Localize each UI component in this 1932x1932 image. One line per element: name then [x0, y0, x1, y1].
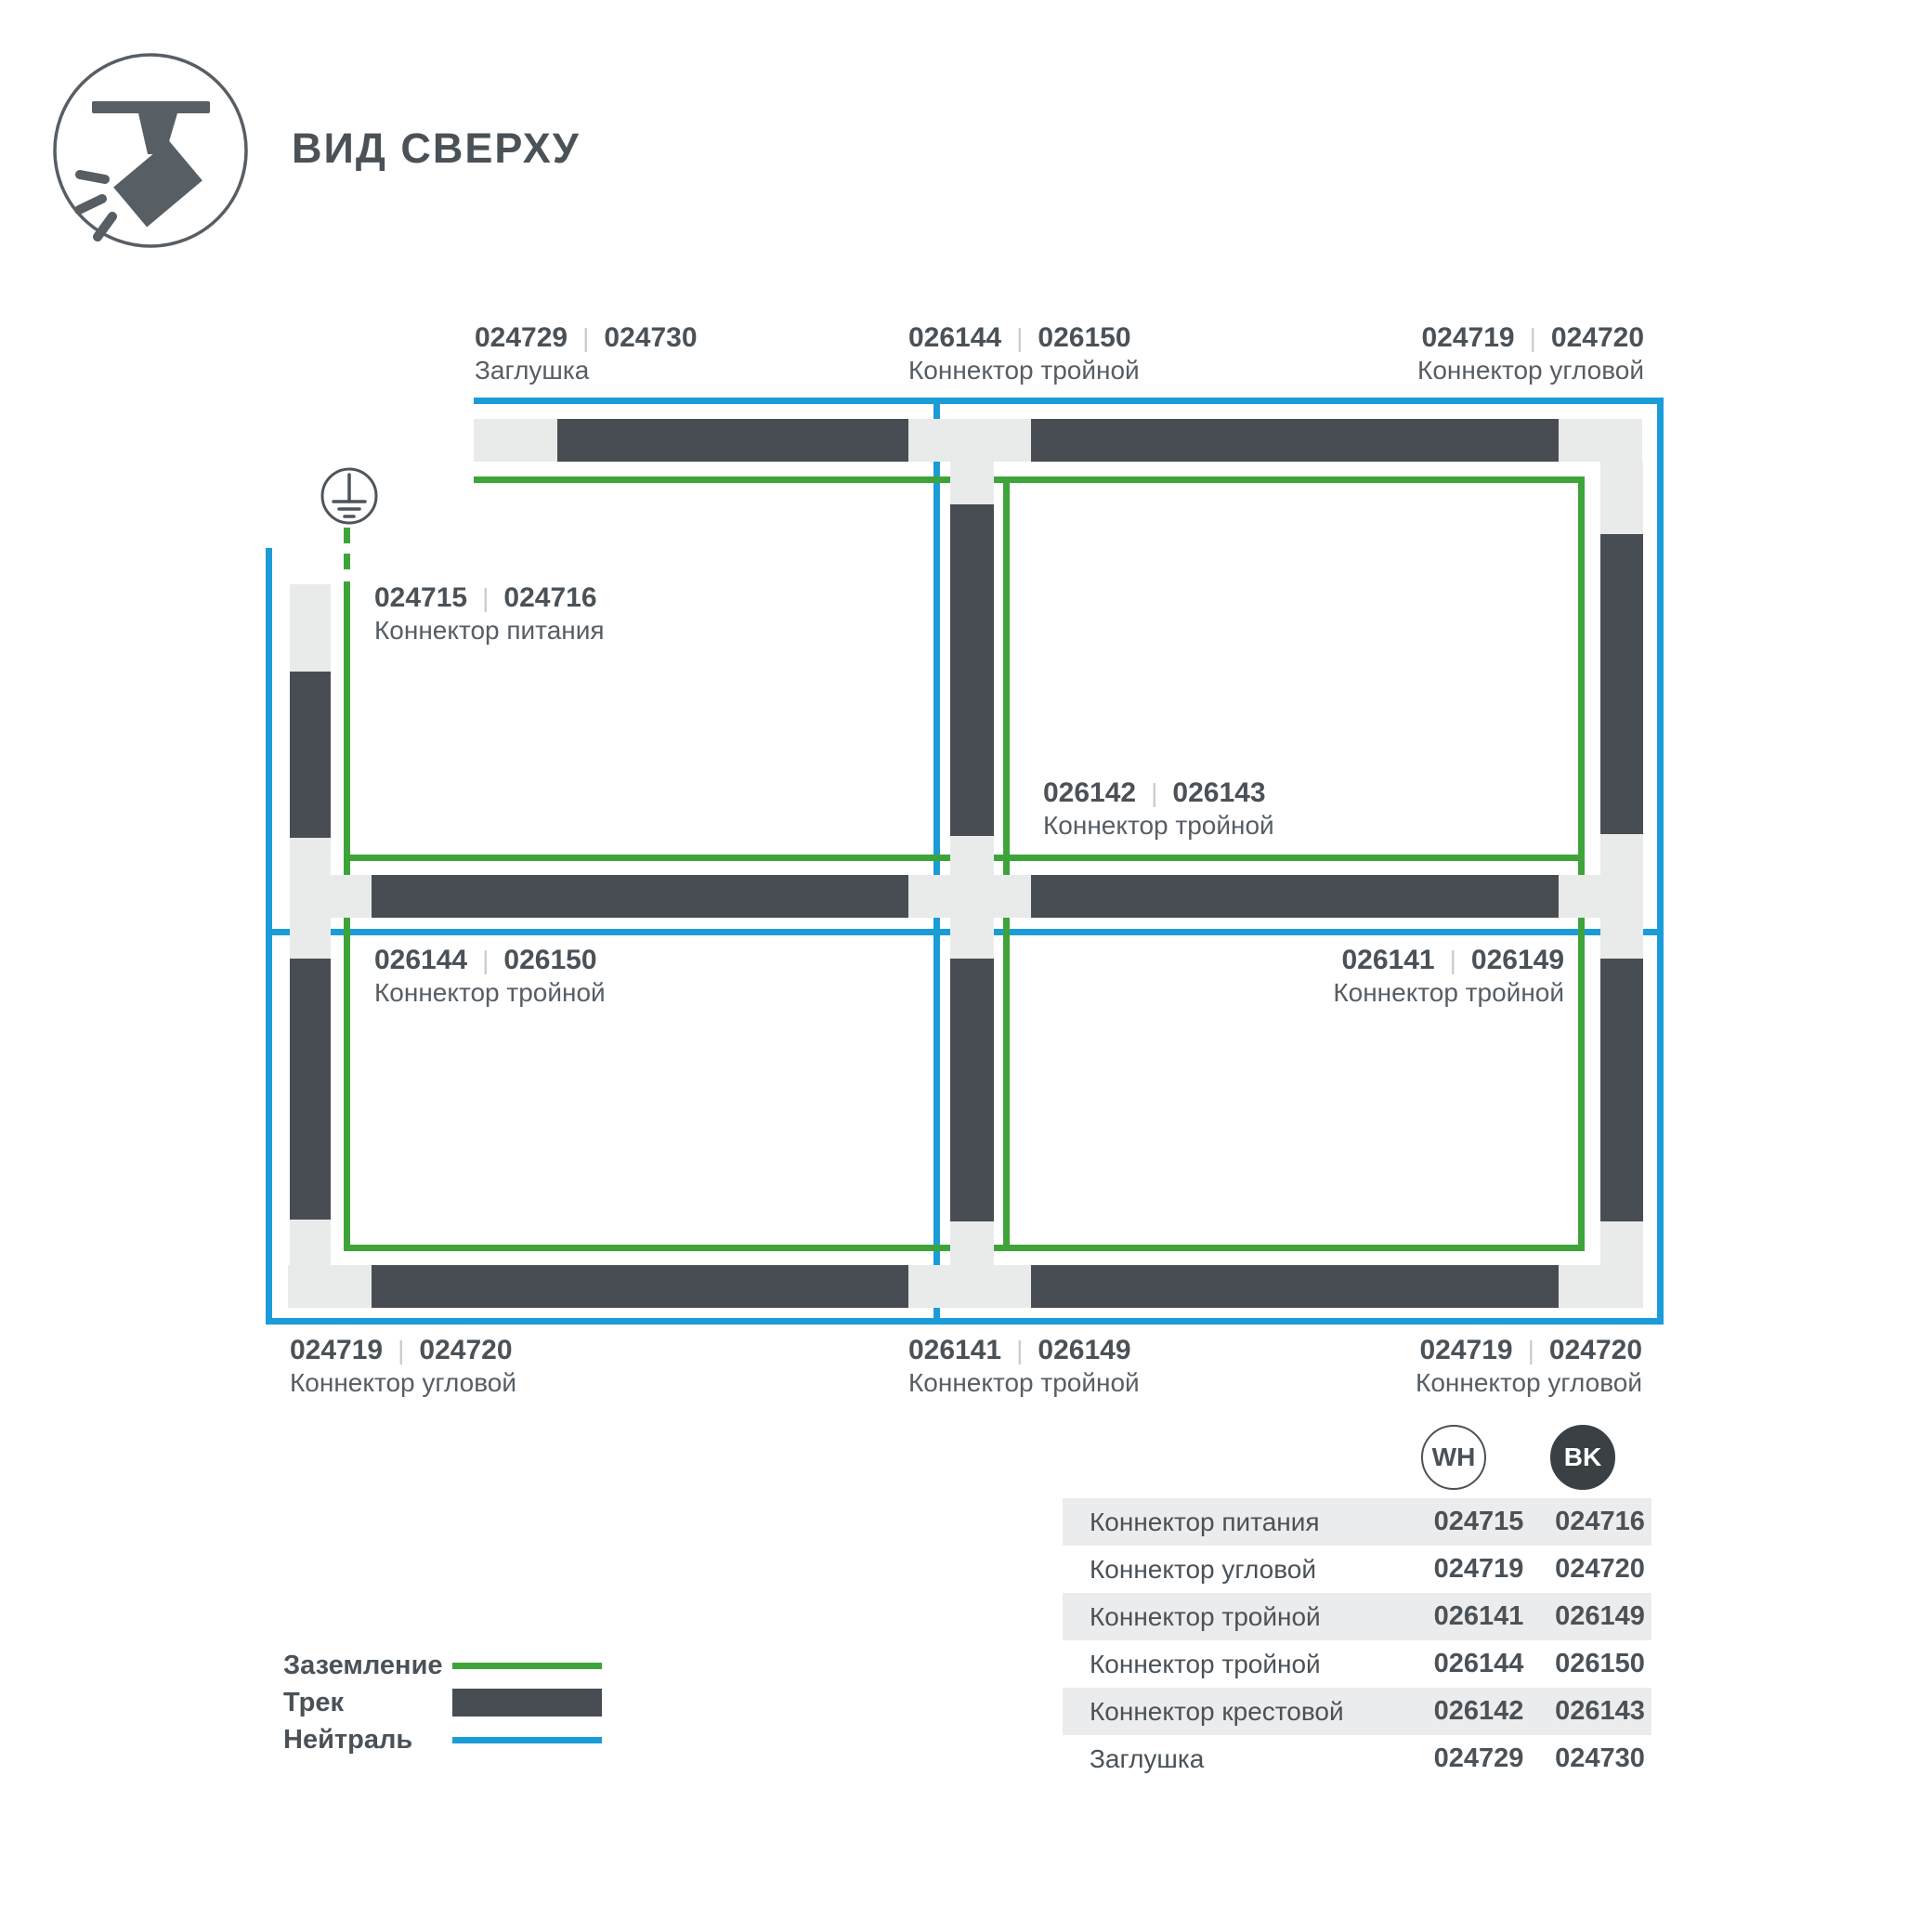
wh-code-cell: 024729 [1409, 1743, 1548, 1774]
wh-code-cell: 026141 [1409, 1601, 1548, 1632]
earth-ground-icon [316, 463, 383, 529]
part-name: Коннектор тройной [1333, 976, 1564, 1009]
part-name-cell: Заглушка [1063, 1744, 1409, 1774]
code-wh: 024719 [1422, 322, 1515, 353]
code-wh: 026141 [908, 1335, 1001, 1365]
bk-code-cell: 024730 [1548, 1743, 1651, 1774]
track-segment [950, 504, 994, 836]
part-label-power-connector: 024715|024716 Коннектор питания [374, 581, 605, 646]
t-connector-top-stub [950, 462, 994, 504]
code-separator: | [1151, 778, 1157, 807]
code-bk: 026150 [1038, 322, 1130, 353]
code-wh: 024715 [374, 582, 467, 613]
track-segment [1031, 875, 1559, 918]
code-bk: 024720 [419, 1335, 512, 1365]
track-segment [290, 959, 331, 1220]
track-segment [950, 959, 994, 1221]
track-segment [290, 672, 331, 838]
code-bk: 024720 [1551, 322, 1644, 353]
part-label-t-connector-midright: 026141|026149 Коннектор тройной [1333, 944, 1564, 1009]
ground-line-top [474, 476, 1585, 483]
code-wh: 024719 [290, 1335, 383, 1365]
legend-label-ground: Заземление [283, 1651, 443, 1680]
table-row: Коннектор тройной 026144 026150 [1063, 1640, 1651, 1688]
table-row: Заглушка 024729 024730 [1063, 1735, 1651, 1782]
top-view-icon [48, 48, 255, 255]
bk-code-cell: 024716 [1548, 1507, 1651, 1537]
corner-connector-topright [1559, 419, 1642, 462]
page-title: ВИД СВЕРХУ [292, 124, 581, 173]
bk-code-cell: 026143 [1548, 1696, 1651, 1727]
code-bk: 026149 [1471, 945, 1564, 975]
t-connector-midright-vert [1600, 834, 1643, 959]
corner-connector-bottomleft-stub [290, 1220, 331, 1308]
wh-code-cell: 024715 [1409, 1507, 1548, 1537]
t-connector-midleft-arm [290, 875, 372, 918]
code-bk: 024716 [503, 582, 596, 613]
part-name: Коннектор угловой [1417, 354, 1644, 386]
track-segment [372, 875, 908, 918]
t-connector-top [908, 419, 1031, 462]
part-name: Коннектор питания [374, 614, 605, 646]
legend-track-bar-swatch [452, 1689, 602, 1717]
code-bk: 026150 [503, 945, 596, 975]
part-name-cell: Коннектор крестовой [1063, 1697, 1409, 1727]
code-wh: 026144 [908, 322, 1001, 353]
corner-connector-topright-stub [1600, 462, 1643, 534]
part-label-t-connector-top: 026144|026150 Коннектор тройной [908, 321, 1140, 386]
code-wh: 026142 [1043, 777, 1136, 808]
legend-neutral-line-swatch [452, 1737, 602, 1743]
wh-code-cell: 026142 [1409, 1696, 1548, 1727]
table-row: Коннектор тройной 026141 026149 [1063, 1593, 1651, 1640]
bk-code-cell: 026150 [1548, 1649, 1651, 1679]
legend-label-neutral: Нейтраль [283, 1725, 412, 1755]
part-name: Коннектор тройной [908, 1366, 1140, 1399]
table-row: Коннектор угловой 024719 024720 [1063, 1546, 1651, 1593]
neutral-line-left [266, 548, 272, 1325]
part-label-corner-bottomright: 024719|024720 Коннектор угловой [1416, 1334, 1642, 1399]
t-connector-bottom-stub [950, 1221, 994, 1265]
track-segment [557, 419, 908, 462]
wh-code-cell: 024719 [1409, 1554, 1548, 1585]
spotlight-head [113, 140, 202, 227]
neutral-line-top [474, 398, 1664, 404]
track-segment [1031, 419, 1559, 462]
color-badge-white: WH [1421, 1425, 1486, 1490]
t-connector-bottom-arm [908, 1265, 1031, 1308]
code-separator: | [1016, 1336, 1023, 1364]
table-row: Коннектор питания 024715 024716 [1063, 1498, 1651, 1546]
track-segment [1600, 534, 1643, 834]
end-cap-connector [474, 419, 557, 462]
code-bk: 024720 [1549, 1335, 1642, 1365]
legend-label-track: Трек [283, 1688, 344, 1717]
code-separator: | [1528, 1336, 1534, 1364]
ground-line-right-vertical [1578, 476, 1585, 1251]
neutral-line-right [1657, 398, 1664, 1325]
part-name: Коннектор тройной [1043, 809, 1274, 842]
power-connector [290, 584, 331, 672]
part-name: Коннектор тройной [374, 976, 606, 1009]
table-row: Коннектор крестовой 026142 026143 [1063, 1688, 1651, 1735]
code-separator: | [1450, 946, 1456, 974]
part-name: Коннектор тройной [908, 354, 1140, 386]
part-label-t-connector-midleft: 026144|026150 Коннектор тройной [374, 944, 606, 1009]
code-separator: | [482, 946, 489, 974]
ground-dash-2 [344, 554, 350, 569]
part-name: Заглушка [475, 354, 698, 386]
code-wh: 024729 [475, 322, 568, 353]
ceiling-track-bar [92, 101, 210, 113]
part-name-cell: Коннектор питания [1063, 1508, 1409, 1537]
color-badge-black: BK [1550, 1425, 1615, 1490]
bk-code-cell: 026149 [1548, 1601, 1651, 1632]
code-bk: 026149 [1038, 1335, 1130, 1365]
bk-code-cell: 024720 [1548, 1554, 1651, 1585]
code-separator: | [482, 583, 489, 612]
code-separator: | [582, 323, 589, 352]
legend-ground-line-swatch [452, 1663, 602, 1669]
code-separator: | [1530, 323, 1536, 352]
ground-line-center-vertical [1003, 476, 1010, 1251]
part-name-cell: Коннектор тройной [1063, 1650, 1409, 1679]
part-name-cell: Коннектор тройной [1063, 1602, 1409, 1632]
code-bk: 024730 [604, 322, 697, 353]
track-segment [372, 1265, 908, 1308]
part-label-endcap-top: 024729|024730 Заглушка [475, 321, 698, 386]
part-label-cross-connector: 026142|026143 Коннектор тройной [1043, 777, 1274, 842]
part-name: Коннектор угловой [1416, 1366, 1642, 1399]
wh-code-cell: 026144 [1409, 1649, 1548, 1679]
page: ВИД СВЕРХУ [0, 0, 1932, 1932]
code-wh: 026141 [1342, 945, 1435, 975]
corner-connector-bottomright-stub [1600, 1221, 1643, 1308]
code-separator: | [1016, 323, 1023, 352]
neutral-line-center-vertical [933, 398, 940, 1325]
part-label-corner-bottomleft: 024719|024720 Коннектор угловой [290, 1334, 516, 1399]
part-name: Коннектор угловой [290, 1366, 516, 1399]
track-segment [1031, 1265, 1559, 1308]
part-label-t-connector-bottom: 026141|026149 Коннектор тройной [908, 1334, 1140, 1399]
code-wh: 026144 [374, 945, 467, 975]
code-wh: 024719 [1420, 1335, 1513, 1365]
track-segment [1600, 959, 1643, 1221]
part-name-cell: Коннектор угловой [1063, 1555, 1409, 1585]
neutral-line-bottom [266, 1318, 1664, 1325]
cross-connector-vert [950, 836, 994, 959]
code-separator: | [398, 1336, 404, 1364]
part-label-corner-topright: 024719|024720 Коннектор угловой [1417, 321, 1644, 386]
code-bk: 026143 [1172, 777, 1265, 808]
ground-dash-1 [344, 528, 350, 543]
